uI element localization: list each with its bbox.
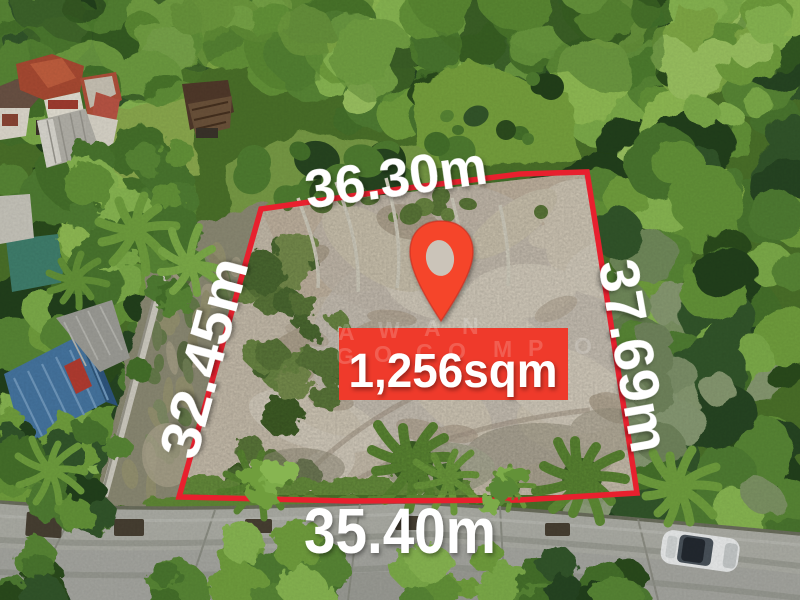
svg-text:C: C [416,339,433,365]
svg-text:O: O [374,341,392,367]
svg-text:O: O [448,338,466,364]
svg-text:35.40m: 35.40m [304,495,496,567]
svg-text:G: G [336,343,354,369]
svg-text:A: A [424,315,441,341]
svg-text:N: N [462,313,479,339]
svg-text:O: O [574,333,592,359]
svg-text:M: M [493,336,512,362]
svg-text:W: W [378,317,400,343]
svg-text:A: A [338,319,355,345]
svg-text:P: P [528,335,543,361]
